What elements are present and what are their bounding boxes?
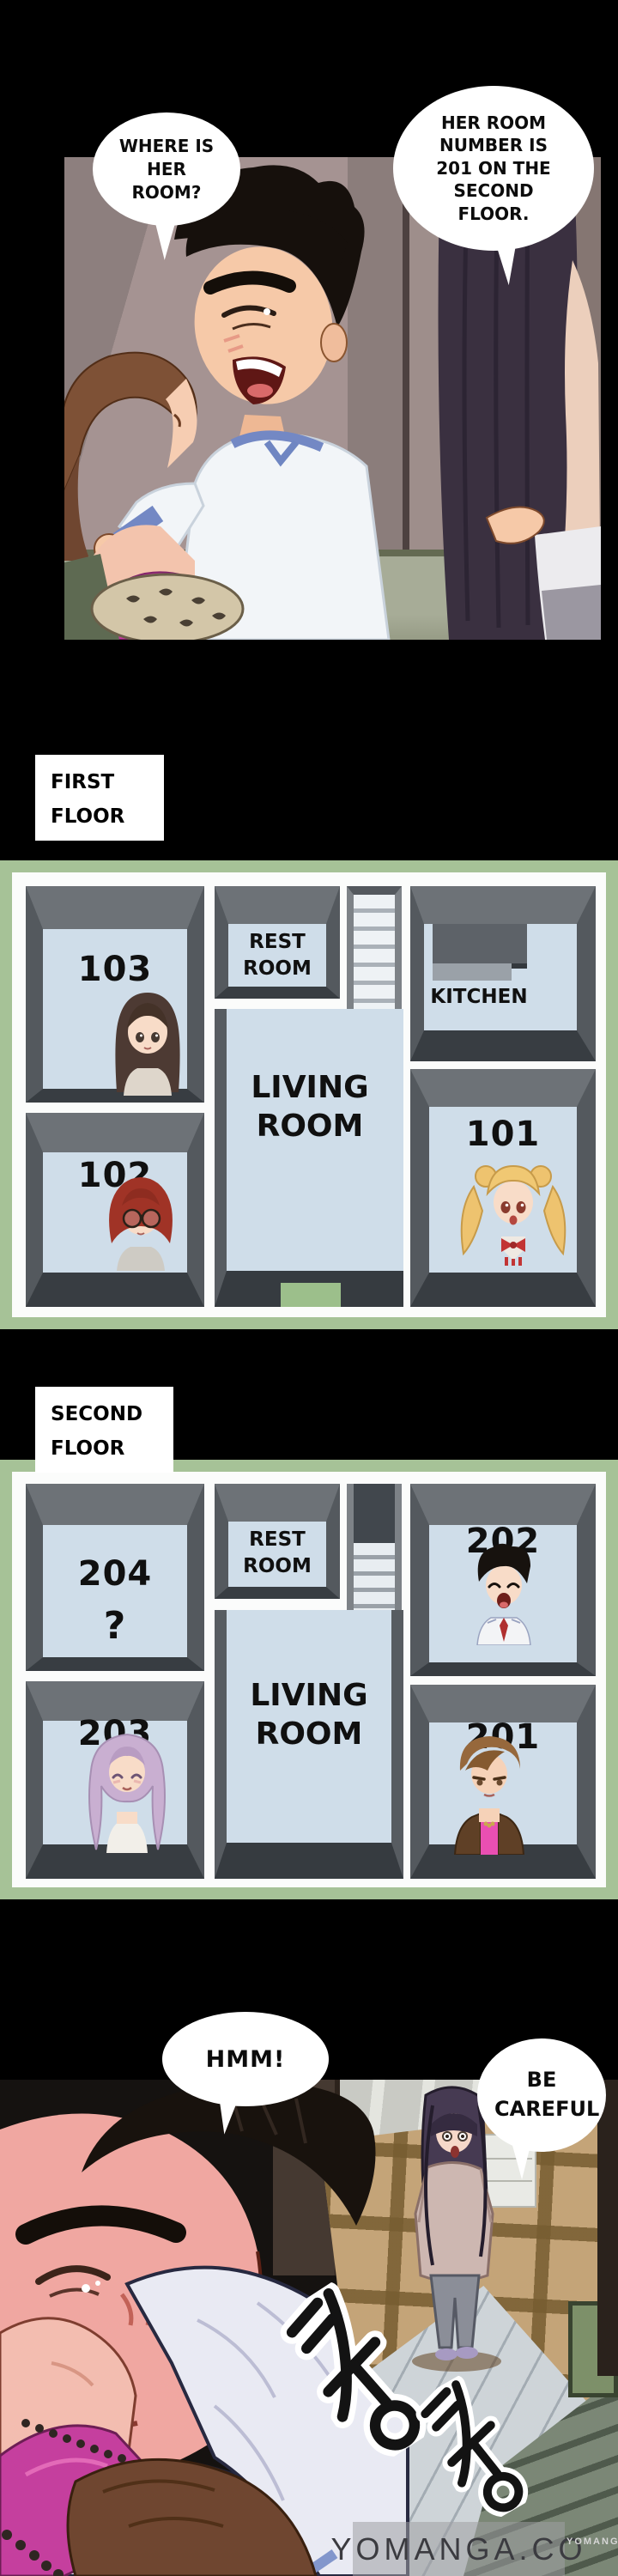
kitchen-label: KITCHEN (427, 984, 530, 1011)
speech-bubble-be-careful: BE CAREFUL (477, 2038, 606, 2152)
girl-blonde-twintails-icon (453, 1156, 573, 1266)
speech-text: WHERE IS HER ROOM? (115, 135, 218, 204)
first-floor-label-box: FIRST FLOOR (35, 755, 164, 841)
speech-text: HER ROOM NUMBER IS 201 ON THE SECOND FLO… (426, 112, 561, 225)
occupant-101 (453, 1156, 573, 1269)
watermark-small: YOMANGA (566, 2537, 618, 2547)
room-living-1f (215, 1009, 403, 1307)
restroom-2f-label: REST ROOM (232, 1527, 323, 1580)
room-204-question-mark: ? (43, 1604, 187, 1648)
girl-red-hair-glasses-icon (100, 1170, 182, 1271)
girl-lavender-hair-icon (82, 1726, 172, 1853)
living-room-door-mat (281, 1283, 341, 1307)
kitchen-inner-wall (433, 924, 527, 969)
occupant-203 (82, 1726, 172, 1856)
manga-page: WHERE IS HER ROOM? HER ROOM NUMBER IS 20… (0, 0, 618, 2576)
man-ear (321, 324, 347, 361)
occupant-201 (443, 1729, 536, 1858)
living-1f-label: LIVING ROOM (228, 1068, 391, 1145)
first-floor-label: FIRST FLOOR (51, 765, 136, 835)
occupant-202 (467, 1540, 541, 1649)
girl-brown-hair-pink-top-icon (443, 1729, 536, 1855)
watermark-text: YOMANGA.CO (330, 2531, 586, 2567)
room-204-number: 204 (43, 1554, 187, 1594)
leopard-pillow (92, 574, 243, 640)
occupant-103 (108, 987, 187, 1099)
room-103-number: 103 (43, 950, 187, 989)
second-floor-label: SECOND FLOOR (51, 1397, 152, 1467)
restroom-1f-label: REST ROOM (232, 929, 323, 982)
room-101-number: 101 (429, 1115, 577, 1154)
speech-text: HMM! (206, 2046, 286, 2073)
living-2f-label: LIVING ROOM (227, 1676, 391, 1753)
watermark-bar: YOMANGA.CO (353, 2522, 565, 2576)
speech-bubble-where: WHERE IS HER ROOM? (93, 112, 240, 226)
speech-bubble-room-number: HER ROOM NUMBER IS 201 ON THE SECOND FLO… (393, 86, 594, 251)
speech-bubble-hmm: HMM! (162, 2012, 329, 2106)
speech-text: BE CAREFUL (494, 2066, 589, 2123)
occupant-102 (100, 1170, 182, 1274)
kitchen-step (433, 963, 512, 981)
second-floor-label-box: SECOND FLOOR (35, 1387, 173, 1473)
boy-black-hair-icon (467, 1540, 541, 1645)
girl-long-dark-hair-icon (108, 987, 187, 1096)
